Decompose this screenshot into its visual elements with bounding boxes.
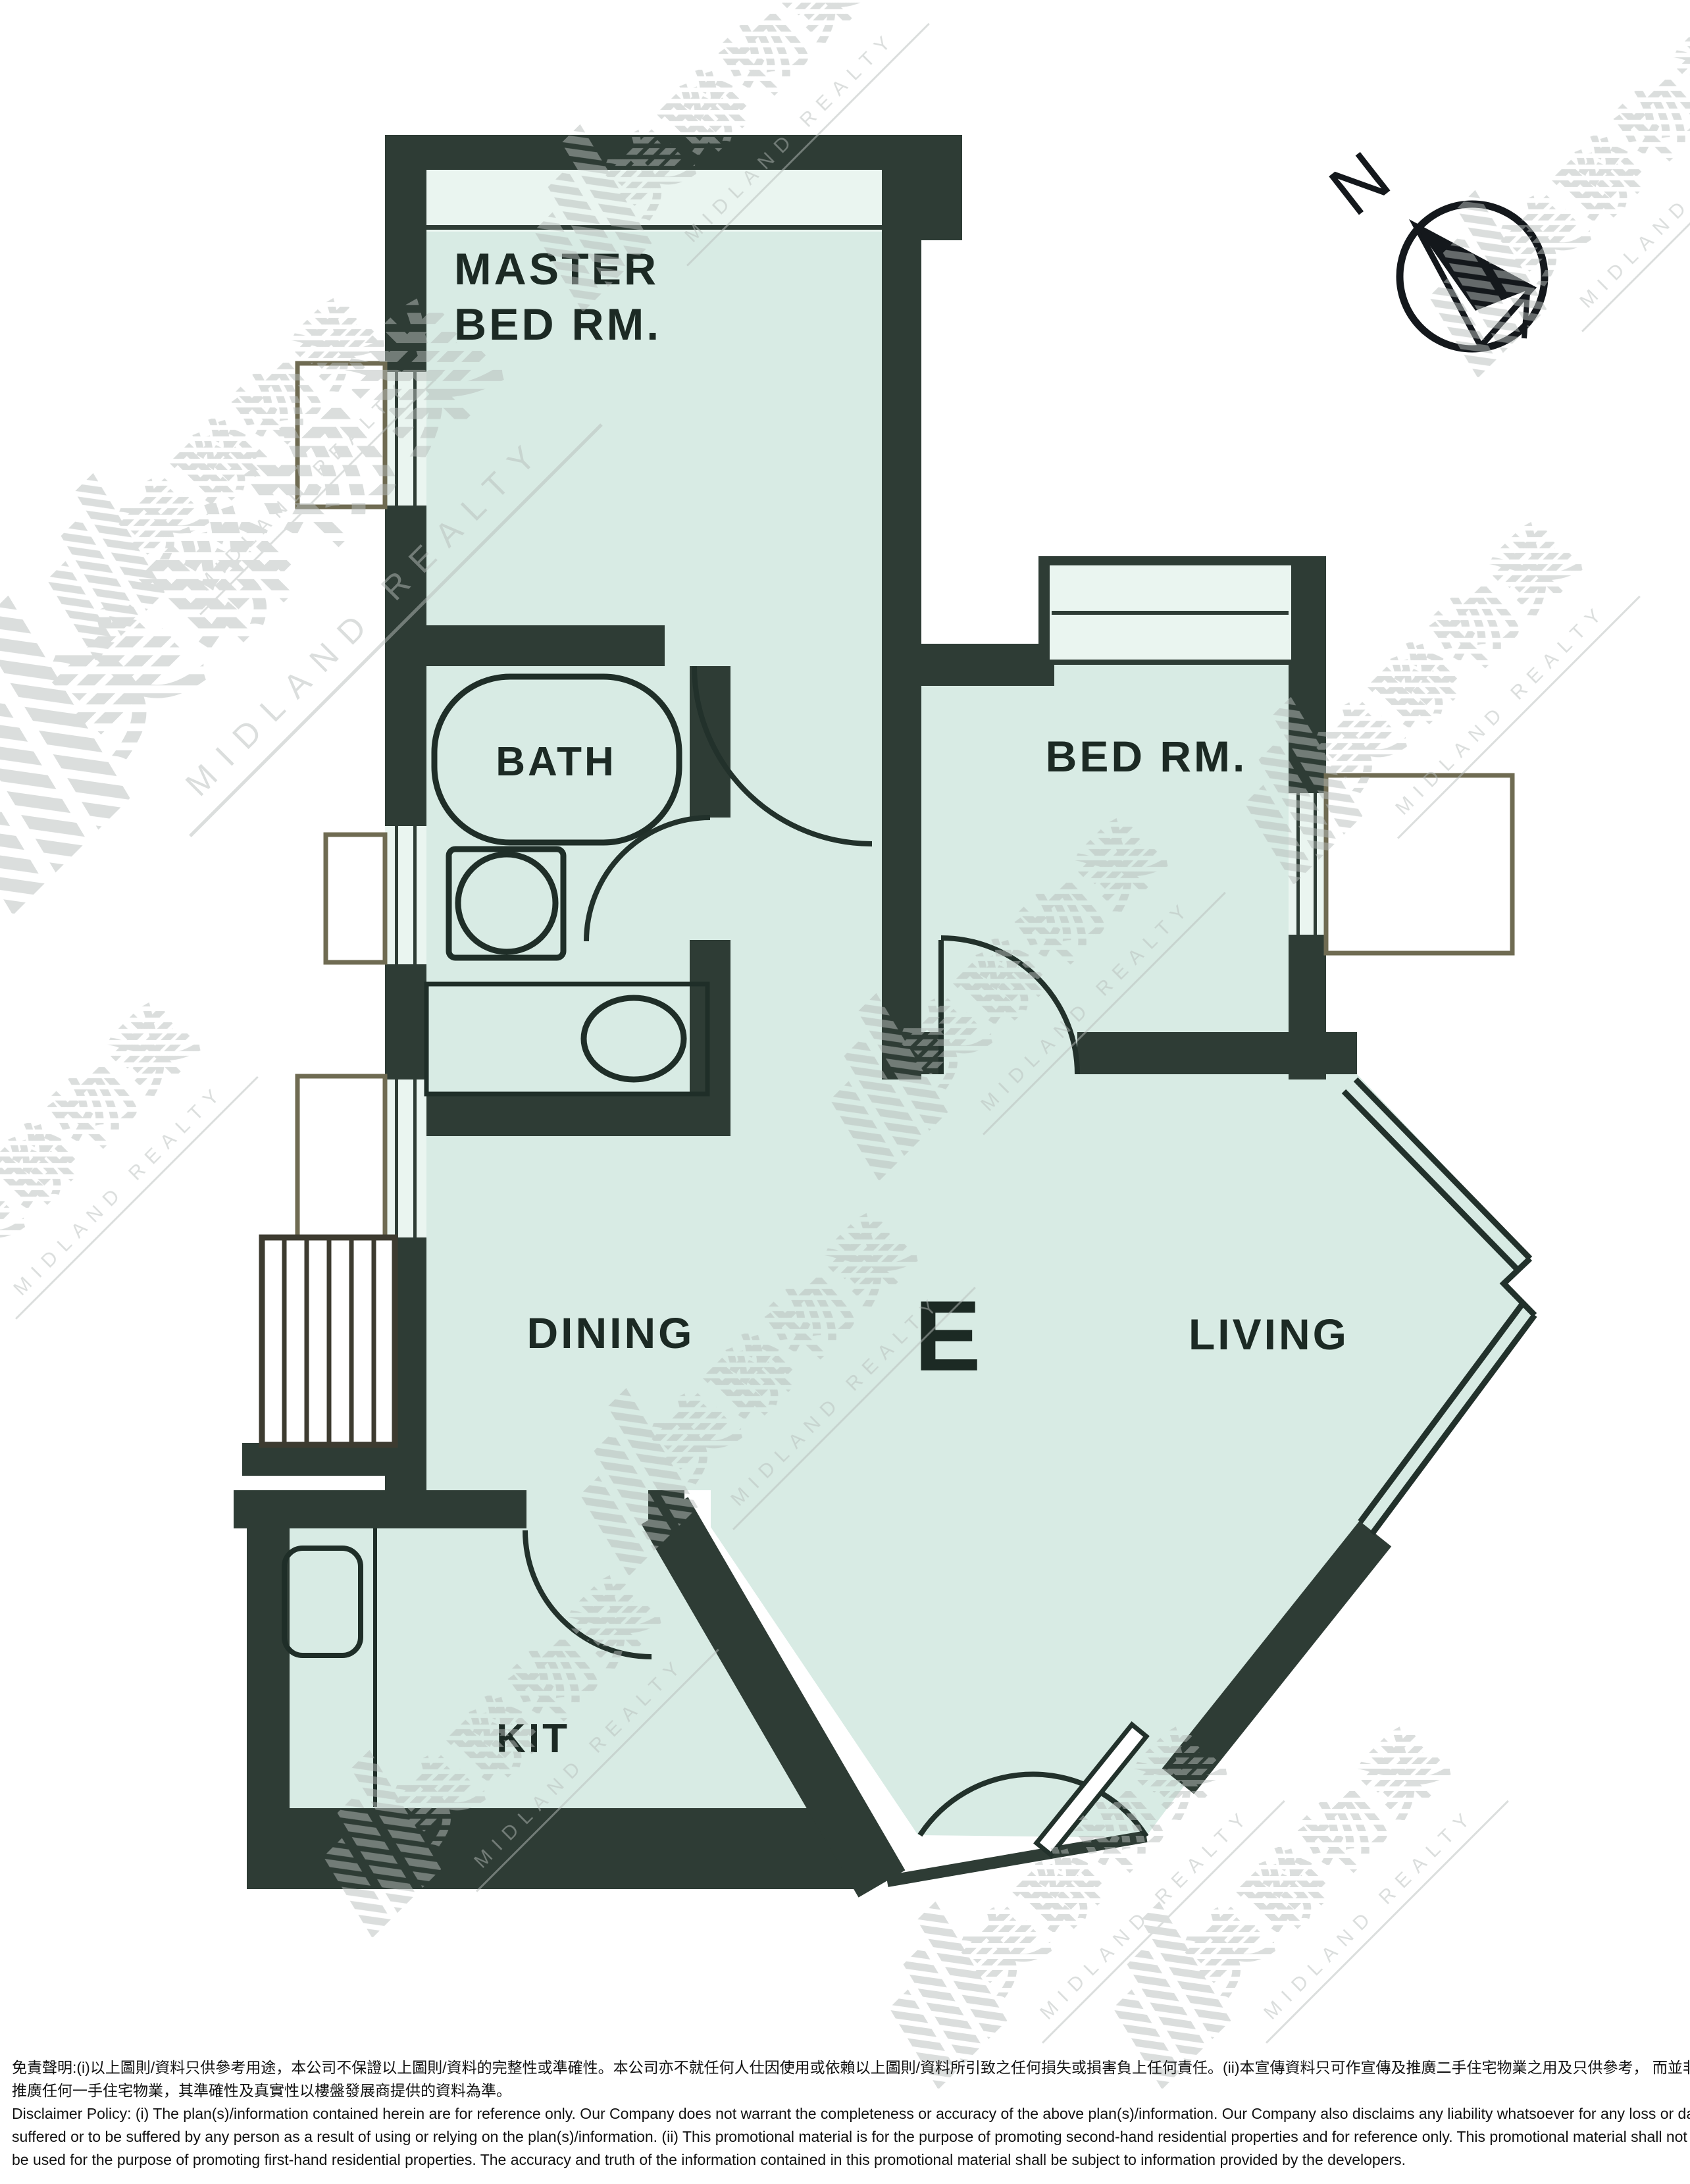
wall-bath-bottom: [385, 1094, 730, 1136]
wall-bedroom-bottom-right: [1077, 1032, 1357, 1074]
window-line: [413, 1079, 417, 1237]
label-bedroom: BED RM.: [1046, 732, 1248, 781]
wall-master-top-stub: [921, 135, 962, 240]
disclaimer-en-line1: Disclaimer Policy: (i) The plan(s)/infor…: [12, 2102, 1685, 2125]
disclaimer-zh-line1: 免責聲明:(i)以上圖則/資料只供參考用途，本公司不保證以上圖則/資料的完整性或…: [12, 2056, 1685, 2079]
ac-platform-bath: [326, 835, 385, 962]
label-bath: BATH: [496, 739, 617, 785]
wall-master-right: [882, 135, 921, 1079]
ac-platform-dining: [297, 1076, 385, 1241]
label-living: LIVING: [1189, 1310, 1349, 1359]
compass-north-label: N: [1315, 136, 1404, 230]
window-line: [1052, 611, 1289, 615]
wall-bedroom-nw: [921, 644, 1054, 686]
label-dining: DINING: [527, 1309, 695, 1357]
disclaimer-en-line3: be used for the purpose of promoting fir…: [12, 2148, 1685, 2171]
watermark-tile: [1383, 0, 1690, 407]
wall-bath-right-lower: [690, 940, 730, 1101]
window-line: [1050, 660, 1291, 665]
disclaimer-block: 免責聲明:(i)以上圖則/資料只供參考用途，本公司不保證以上圖則/資料的完整性或…: [12, 2056, 1685, 2171]
floorplan-svg: 美聯物業 MIDLAND REALTY: [0, 0, 1690, 2184]
wall-bedroom-window-top: [1050, 556, 1291, 565]
window-dining-left: [385, 1079, 426, 1237]
window-line: [413, 826, 417, 964]
disclaimer-en-line2: suffered or to be suffered by any person…: [12, 2125, 1685, 2148]
watermark-tile: [0, 952, 258, 1394]
wall-master-bath-divider: [385, 625, 665, 666]
window-line: [395, 826, 398, 964]
window-bath-left: [385, 826, 426, 964]
louvre-panel: [262, 1237, 395, 1445]
disclaimer-zh-line2: 推廣任何一手住宅物業，其準確性及真實性以樓盤發展商提供的資料為準。: [12, 2079, 1685, 2102]
window-line: [395, 1079, 398, 1237]
